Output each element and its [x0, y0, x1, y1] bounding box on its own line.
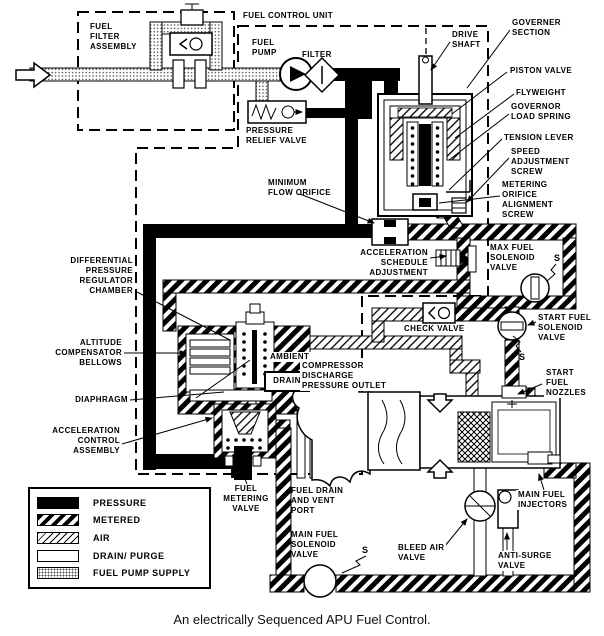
- start-fuel-solenoid-valve-symbol: [498, 312, 526, 340]
- s-zigzag-main: [342, 556, 366, 573]
- label-max-fuel-solenoid-valve: MAX FUEL SOLENOID VALVE: [490, 243, 535, 273]
- legend: PRESSURE METERED AIR DRAIN/ PURGE FUEL P…: [28, 487, 211, 589]
- label-s-start: S: [519, 353, 525, 362]
- inlet-arrow: [16, 63, 50, 87]
- label-metering-orifice-alignment-screw: METERING ORIFICE ALIGNMENT SCREW: [502, 180, 553, 220]
- label-filter: FILTER: [302, 50, 332, 60]
- label-drive-shaft: DRIVE SHAFT: [452, 30, 481, 50]
- label-start-fuel-solenoid-valve: START FUEL SOLENOID VALVE: [538, 313, 591, 343]
- label-speed-adjustment-screw: SPEED ADJUSTMENT SCREW: [511, 147, 570, 177]
- s-zigzag-max: [547, 264, 556, 281]
- piston-valve-symbol: [419, 124, 431, 186]
- label-acceleration-control-assembly: ACCELERATION CONTROL ASSEMBLY: [52, 426, 120, 456]
- drain-purge-swatch: [37, 550, 79, 562]
- acceleration-schedule-adjustment-symbol: [436, 246, 476, 272]
- legend-label: FUEL PUMP SUPPLY: [93, 568, 190, 578]
- label-tension-lever: TENSION LEVER: [504, 133, 574, 143]
- air-swatch: [37, 532, 79, 544]
- fuel-pump-supply-swatch: [37, 567, 79, 579]
- label-fuel-filter-assembly: FUEL FILTER ASSEMBLY: [90, 22, 137, 52]
- label-fuel-pump: FUEL PUMP: [252, 38, 277, 58]
- label-s-max: S: [554, 254, 560, 263]
- label-fuel-drain-and-vent-port: FUEL DRAIN AND VENT PORT: [291, 486, 343, 516]
- label-governer-section: GOVERNER SECTION: [512, 18, 561, 38]
- legend-label: PRESSURE: [93, 498, 147, 508]
- label-compressor-discharge-pressure-outlet: COMPRESSOR DISCHARGE PRESSURE OUTLET: [300, 361, 388, 391]
- label-fuel-control-unit: FUEL CONTROL UNIT: [243, 11, 333, 21]
- label-flyweight: FLYWEIGHT: [516, 88, 566, 98]
- legend-label: AIR: [93, 533, 110, 543]
- legend-row-metered: METERED: [30, 514, 209, 526]
- legend-row-air: AIR: [30, 532, 209, 544]
- label-main-fuel-solenoid-valve: MAIN FUEL SOLENOID VALVE: [291, 530, 338, 560]
- max-fuel-solenoid-valve-symbol: [521, 274, 549, 302]
- label-check-valve: CHECK VALVE: [402, 324, 467, 334]
- minimum-flow-orifice-symbol: [372, 219, 408, 245]
- label-piston-valve: PISTON VALVE: [510, 66, 572, 76]
- anti-surge-valve-symbol: [498, 490, 518, 528]
- pressure-swatch: [37, 497, 79, 509]
- label-anti-surge-valve: ANTI-SURGE VALVE: [496, 551, 554, 571]
- label-altitude-compensator-bellows: ALTITUDE COMPENSATOR BELLOWS: [55, 338, 122, 368]
- label-governor-load-spring: GOVERNOR LOAD SPRING: [511, 102, 571, 122]
- bleed-air-valve-symbol: [465, 491, 495, 521]
- label-minimum-flow-orifice: MINIMUM FLOW ORIFICE: [268, 178, 331, 198]
- filter-symbol: [305, 58, 339, 92]
- fuel-pump-supply-lines: [30, 22, 280, 107]
- apu-fuel-control-diagram: FUEL FILTER ASSEMBLY FUEL CONTROL UNIT F…: [0, 0, 604, 636]
- label-s-main: S: [362, 546, 368, 555]
- metered-swatch: [37, 514, 79, 526]
- flyweight-left: [390, 118, 403, 160]
- label-start-fuel-nozzles: START FUEL NOZZLES: [544, 368, 588, 398]
- legend-label: METERED: [93, 515, 141, 525]
- legend-row-drain-purge: DRAIN/ PURGE: [30, 550, 209, 562]
- label-fuel-metering-valve: FUEL METERING VALVE: [218, 484, 274, 514]
- diaphragm-lever: [190, 390, 272, 401]
- label-bleed-air-valve: BLEED AIR VALVE: [396, 543, 446, 563]
- label-differential-pressure-regulator-chamber: DIFFERENTIAL PRESSURE REGULATOR CHAMBER: [70, 256, 133, 296]
- figure-caption: An electrically Sequenced APU Fuel Contr…: [0, 612, 604, 627]
- label-pressure-relief-valve: PRESSURE RELIEF VALVE: [246, 126, 307, 146]
- label-main-fuel-injectors: MAIN FUEL INJECTORS: [516, 490, 569, 510]
- main-fuel-solenoid-valve-symbol: [304, 565, 336, 597]
- turbine-section: [458, 412, 490, 462]
- label-diaphragm: DIAPHRAGM: [75, 395, 128, 405]
- legend-row-fuel-pump-supply: FUEL PUMP SUPPLY: [30, 567, 209, 579]
- legend-label: DRAIN/ PURGE: [93, 551, 165, 561]
- label-acceleration-schedule-adjustment: ACCELERATION SCHEDULE ADJUSTMENT: [360, 248, 428, 278]
- flyweight-right: [447, 118, 460, 160]
- check-valve-symbol: [423, 303, 455, 323]
- pressure-relief-valve-symbol: [248, 101, 306, 123]
- legend-row-pressure: PRESSURE: [30, 497, 209, 509]
